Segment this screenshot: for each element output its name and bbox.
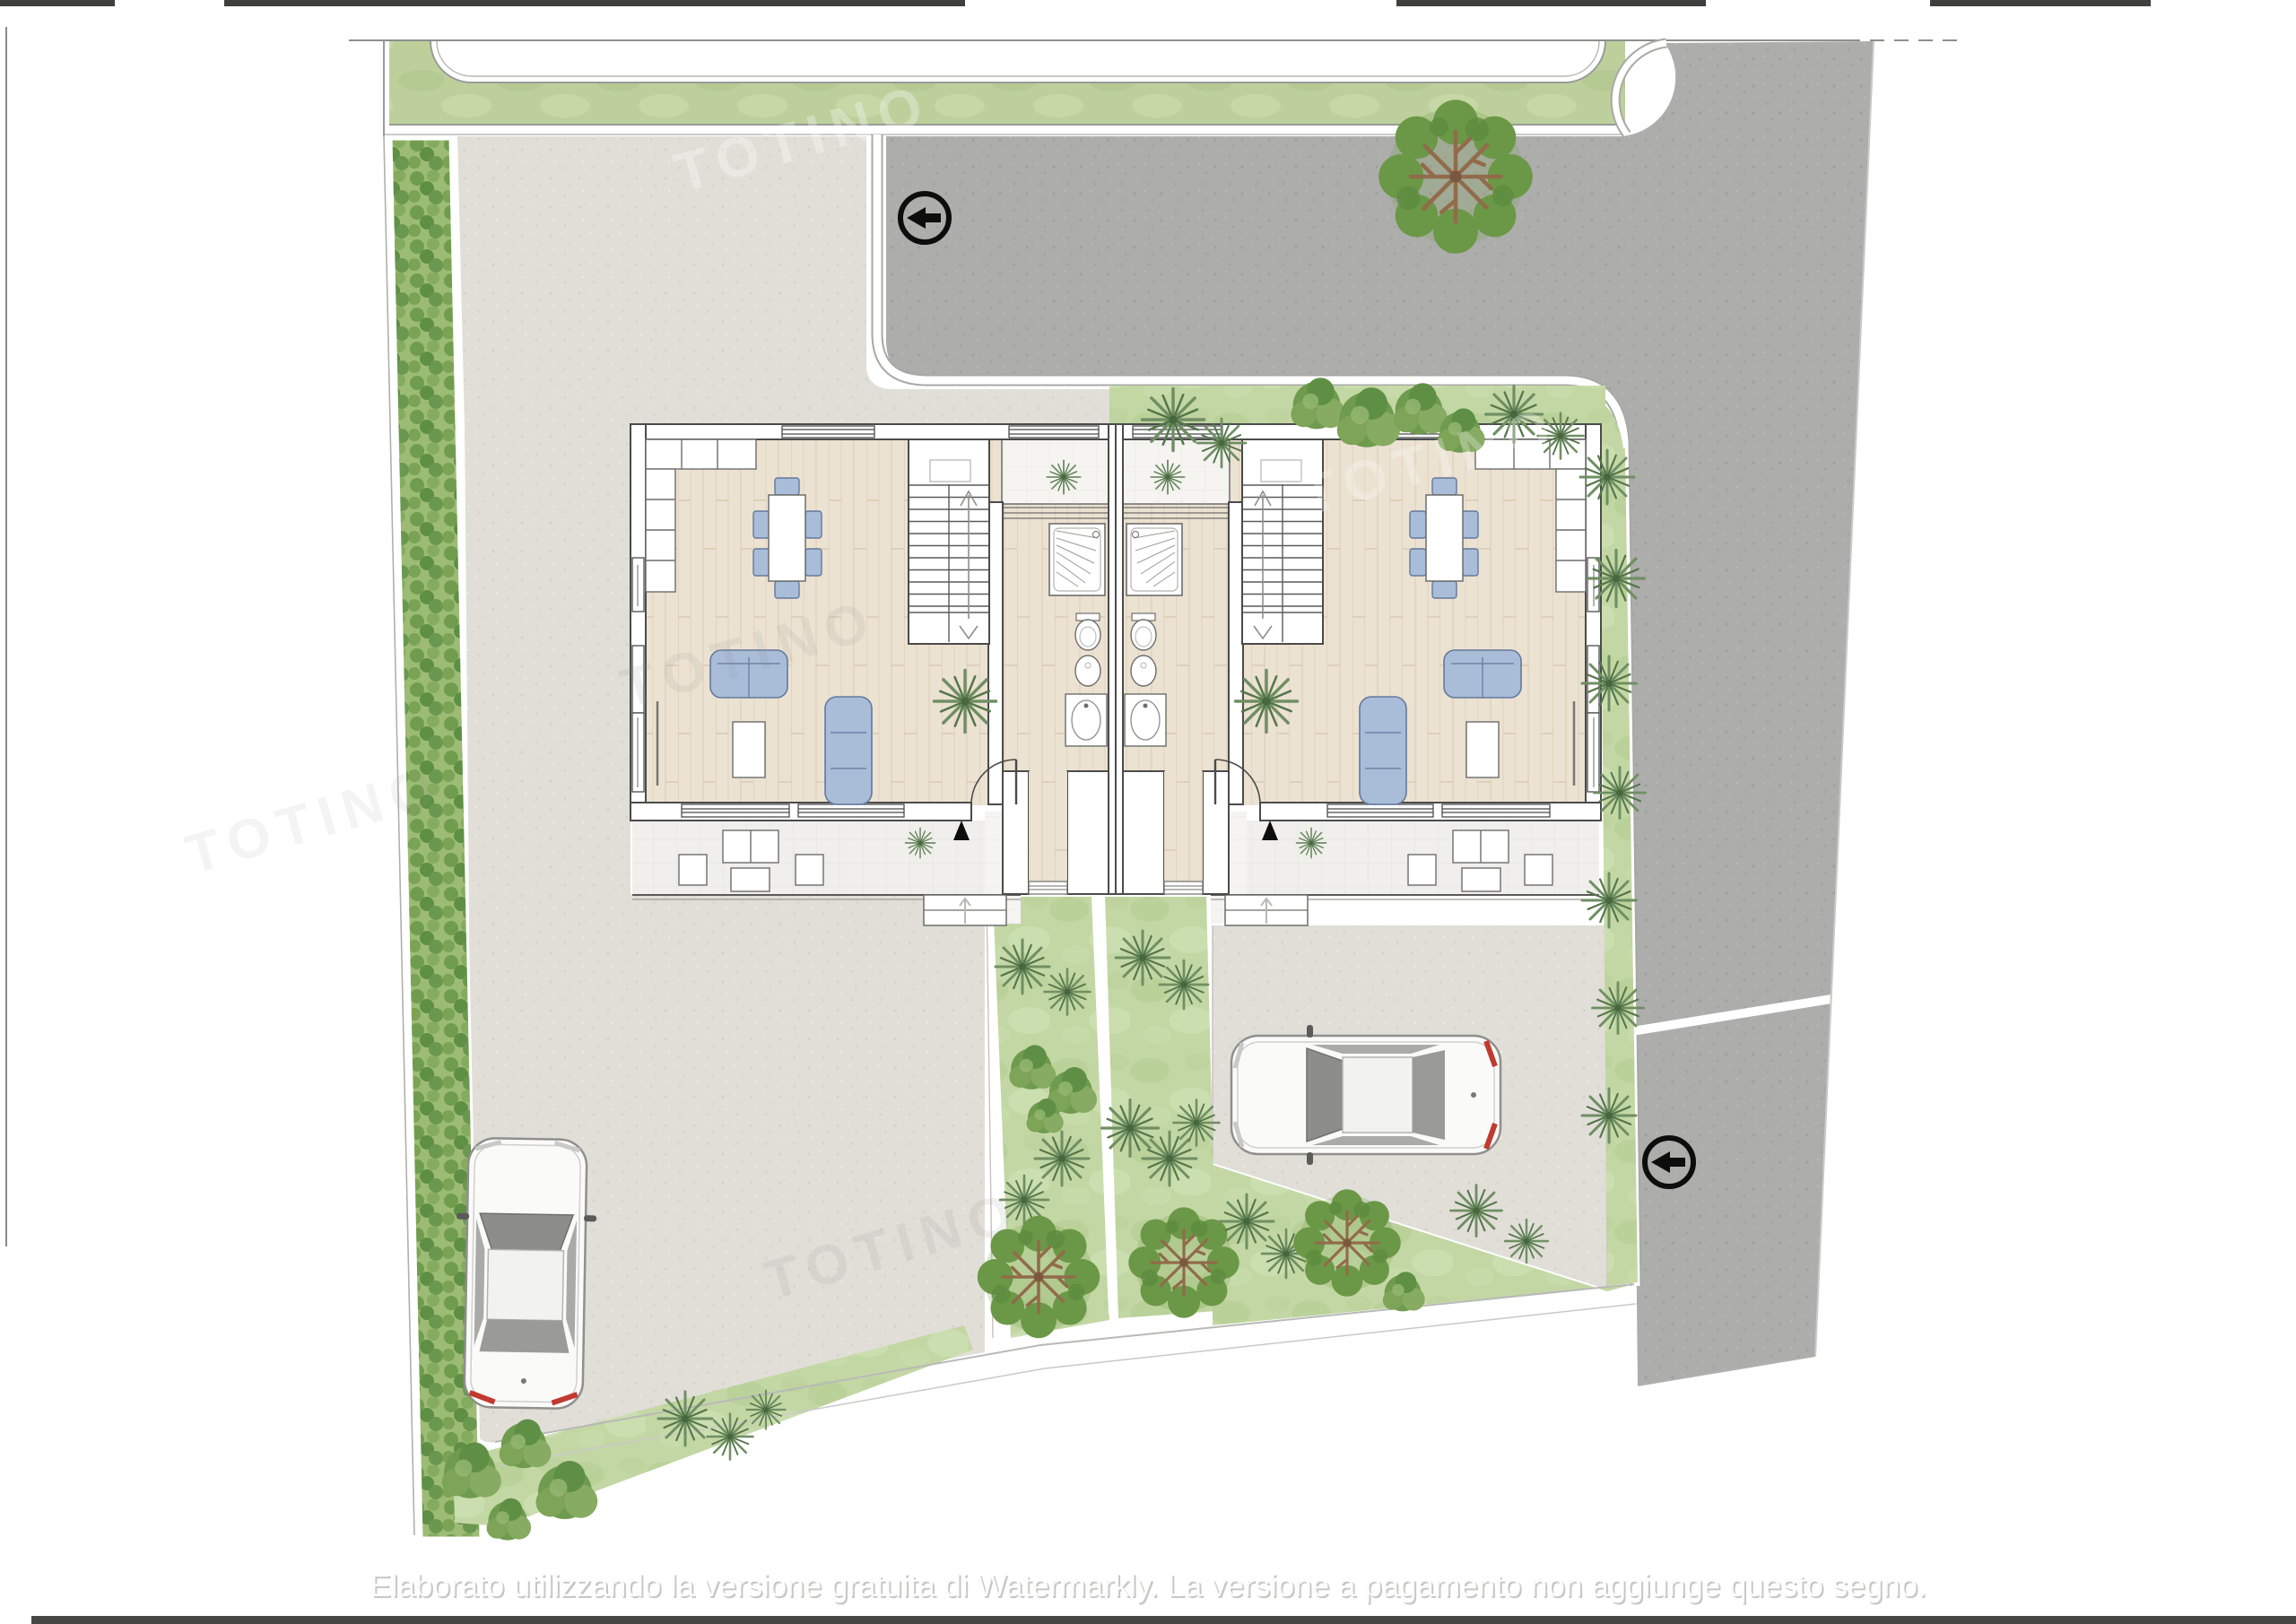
site-plan-sheet: TOTINO TOTINO TOTINO TOTINO TOTINO Elabo… <box>0 0 2296 1624</box>
svg-text:Elaborato utilizzando la versi: Elaborato utilizzando la versione gratui… <box>370 1568 1926 1603</box>
coffee-table <box>733 722 765 777</box>
watermark-caption: Elaborato utilizzando la versione gratui… <box>370 1568 1928 1605</box>
entry-court <box>1002 439 1109 504</box>
bidet <box>1075 656 1100 686</box>
dining-table <box>769 495 805 581</box>
chaise <box>825 697 872 804</box>
site-plan-drawing: TOTINO TOTINO TOTINO TOTINO TOTINO Elabo… <box>0 0 2296 1624</box>
car-parked-left <box>453 1138 597 1410</box>
entry-steps <box>924 895 1006 925</box>
staircase <box>909 439 989 644</box>
car-parked-right <box>1231 1025 1500 1165</box>
street-tree <box>1378 100 1533 254</box>
